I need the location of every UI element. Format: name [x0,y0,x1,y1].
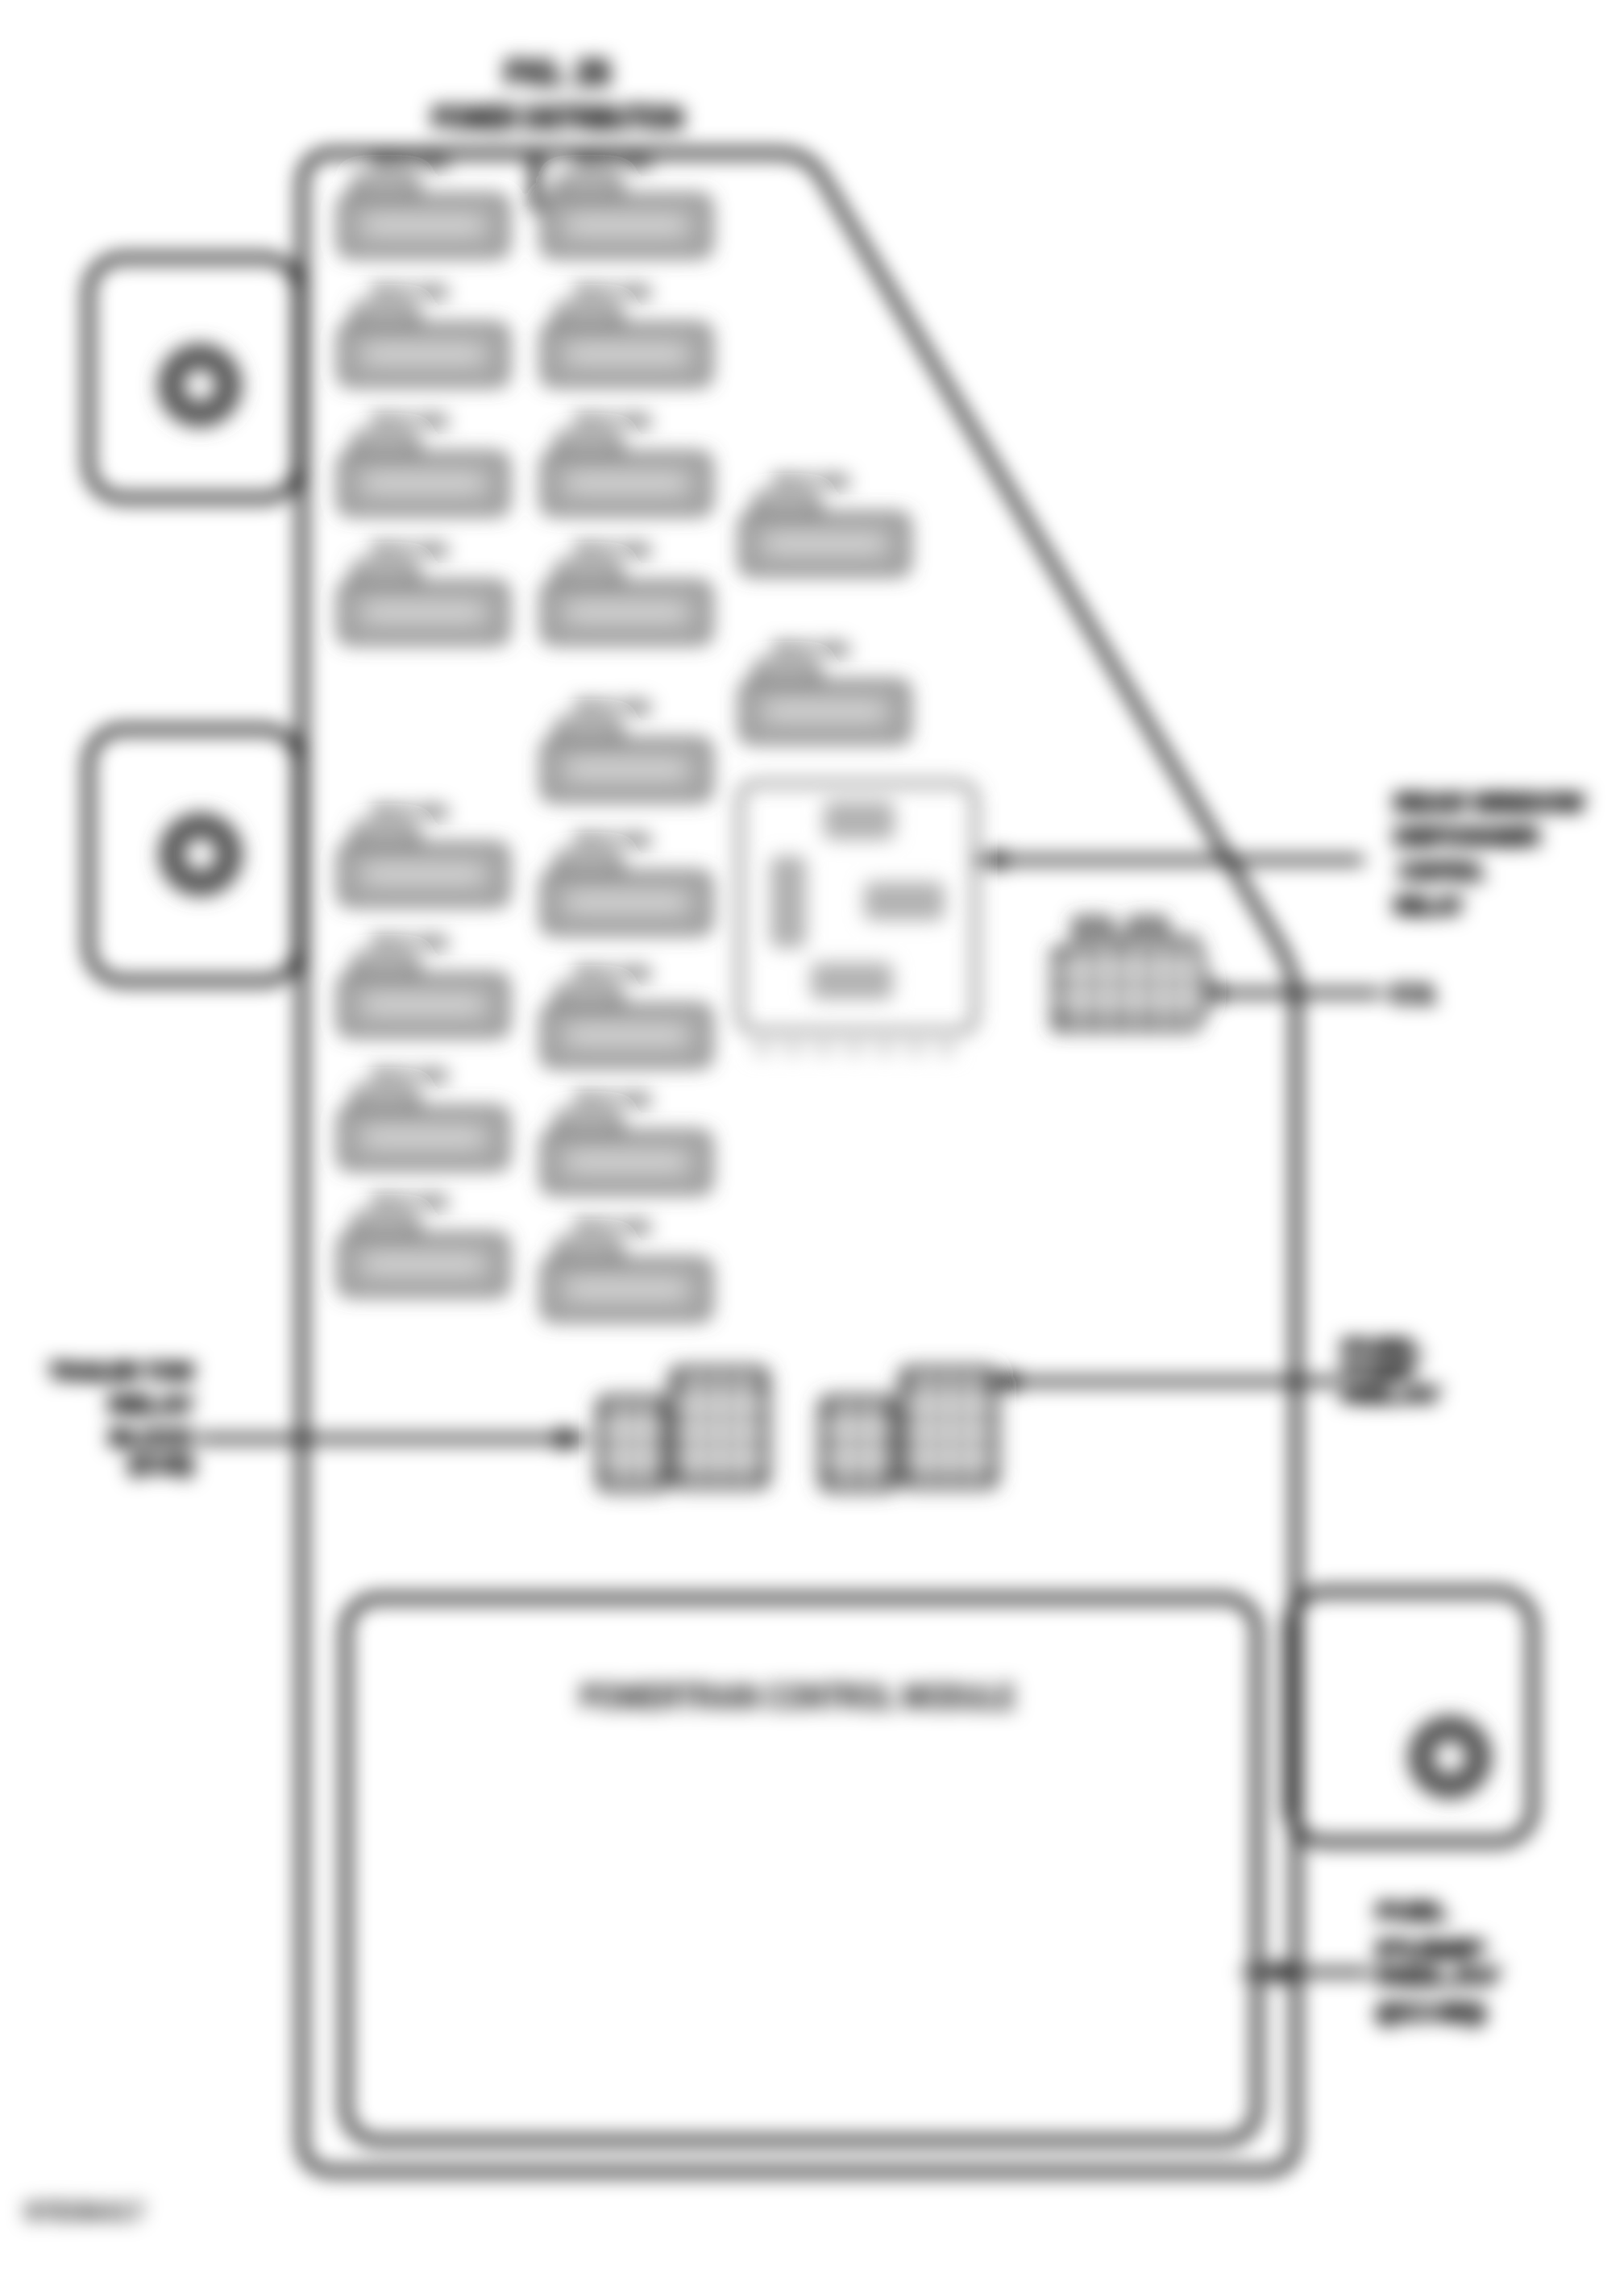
svg-text:TRAILER TOW: TRAILER TOW [49,1359,194,1384]
svg-text:POWERTRAIN CONTROL MODULE: POWERTRAIN CONTROL MODULE [580,1677,1016,1717]
svg-text:(C3): (C3) [1377,2000,1485,2025]
svg-text:FIG. 25: FIG. 25 [505,53,611,93]
svg-text:CONTROL: CONTROL [1399,858,1485,885]
svg-text:(C2): (C2) [129,1452,193,1477]
svg-text:BLOCK: BLOCK [110,1425,193,1450]
svg-text:RELAY: RELAY [1377,1963,1501,1988]
svg-text:FUEL: FUEL [1377,1899,1448,1924]
svg-text:PUMP: PUMP [1342,1359,1416,1383]
svg-text:RELAY: RELAY [109,1392,193,1417]
svg-text:POWER DISTRIBUTION: POWER DISTRIBUTION [433,101,683,136]
svg-text:97E06417: 97E06417 [25,2199,144,2225]
svg-text:REAR WINDOW: REAR WINDOW [1394,790,1585,816]
svg-text:RELAY: RELAY [1342,1382,1440,1406]
svg-text:PUMP: PUMP [1377,1937,1485,1962]
svg-text:FUEL: FUEL [1342,1336,1423,1360]
svg-text:C1: C1 [1390,981,1435,1008]
svg-text:DEFOGGER: DEFOGGER [1394,824,1539,850]
svg-text:RELAY: RELAY [1394,893,1463,920]
